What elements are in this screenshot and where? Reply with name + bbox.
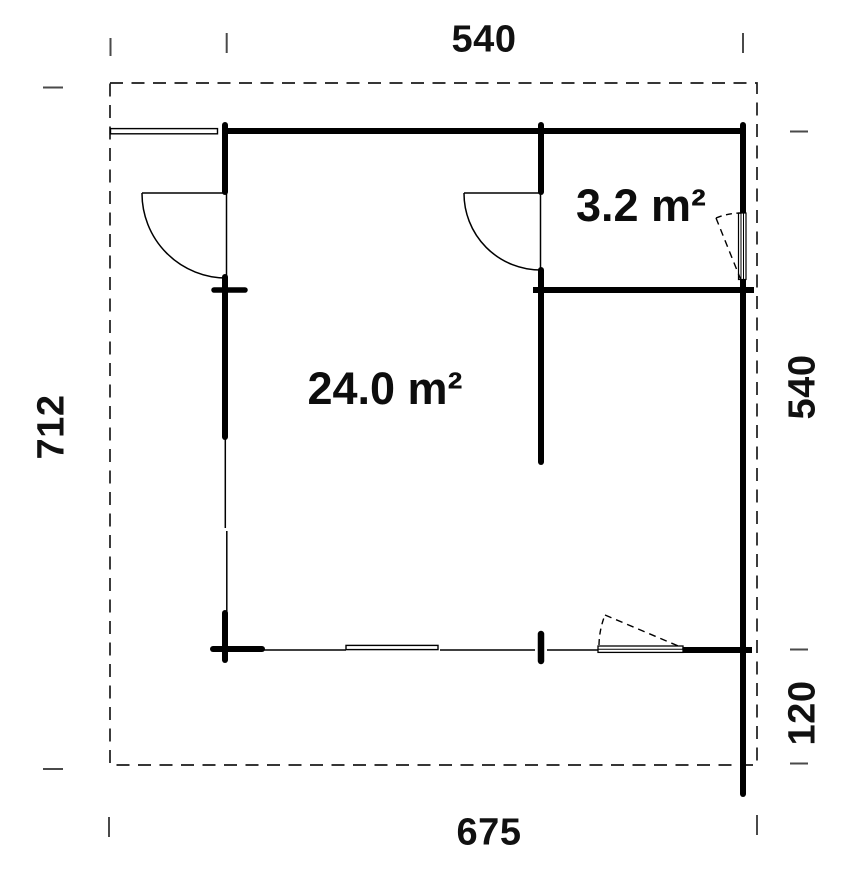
window-bottom: [346, 645, 438, 649]
dimension-ticks: [43, 33, 808, 837]
window-top-left: [111, 129, 218, 134]
dimension-bottom-width: 675: [457, 812, 522, 855]
door-bottom-exterior: [598, 615, 683, 652]
dimension-top-width: 540: [452, 19, 517, 62]
thin-walls: [225, 437, 599, 650]
room-side-area-label: 3.2 m²: [576, 180, 706, 232]
window-right-open-dashed: [716, 218, 741, 279]
window-right-swing: [716, 213, 741, 279]
door-left-swing-arc: [142, 193, 227, 278]
dimension-right-height: 540: [782, 355, 825, 420]
window-right: [739, 213, 747, 280]
floor-plan-canvas: 540 712 540 120 675 24.0 m² 3.2 m²: [0, 0, 865, 885]
door-left-exterior: [142, 193, 227, 278]
window-right-arc-dashed: [716, 213, 741, 218]
window-right-frame: [739, 213, 747, 280]
floor-plan-drawing: [0, 0, 865, 885]
door-side-room: [464, 193, 541, 270]
door-bottom-arc-dashed: [599, 615, 605, 645]
door-bottom-open-dashed: [605, 615, 683, 648]
dimension-right-offset: 120: [782, 681, 825, 746]
door-side-swing-arc: [464, 193, 541, 270]
room-main-area-label: 24.0 m²: [307, 363, 462, 415]
dimension-left-height: 712: [31, 395, 74, 460]
doors: [142, 193, 741, 652]
